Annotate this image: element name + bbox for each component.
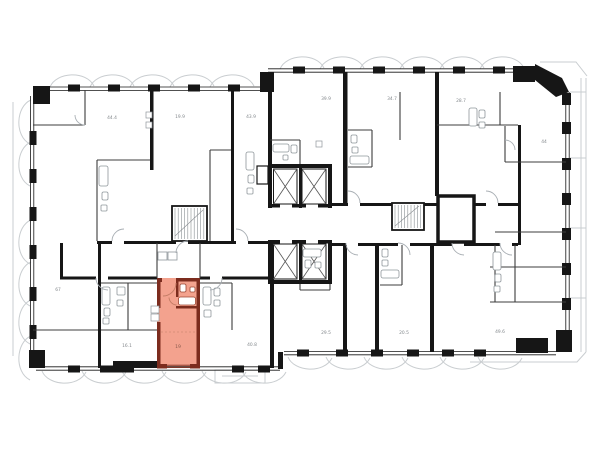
exterior-walls [30,69,569,370]
room-area-label: 34.7 [387,96,397,102]
highlighted-unit-label: 19 [175,344,181,350]
partition-walls [33,90,566,330]
room-area-label: 67 [55,287,61,293]
room-area-label: 49.6 [495,329,505,335]
room-area-label: 44 [541,139,547,145]
floor-plan-canvas: 44.4 19.9 43.9 39.9 34.7 28.7 44 67 16.1… [0,0,600,450]
wall-piers [29,64,572,373]
stairs-left [172,206,207,241]
room-area-label: 19.9 [175,114,185,120]
service-room [438,196,474,242]
room-area-label: 43.9 [246,114,256,120]
shaft-duct [257,166,268,184]
stairs-right [392,203,424,230]
room-area-label: 44.4 [107,115,117,121]
room-area-label: 20.5 [399,330,409,336]
room-area-label: 28.7 [456,98,466,104]
room-area-label: 40.8 [247,342,257,348]
room-area-label: 29.5 [321,330,331,336]
floor-plan-svg: 44.4 19.9 43.9 39.9 34.7 28.7 44 67 16.1… [0,0,600,450]
room-area-label: 39.9 [321,96,331,102]
room-area-label: 16.1 [122,343,132,349]
